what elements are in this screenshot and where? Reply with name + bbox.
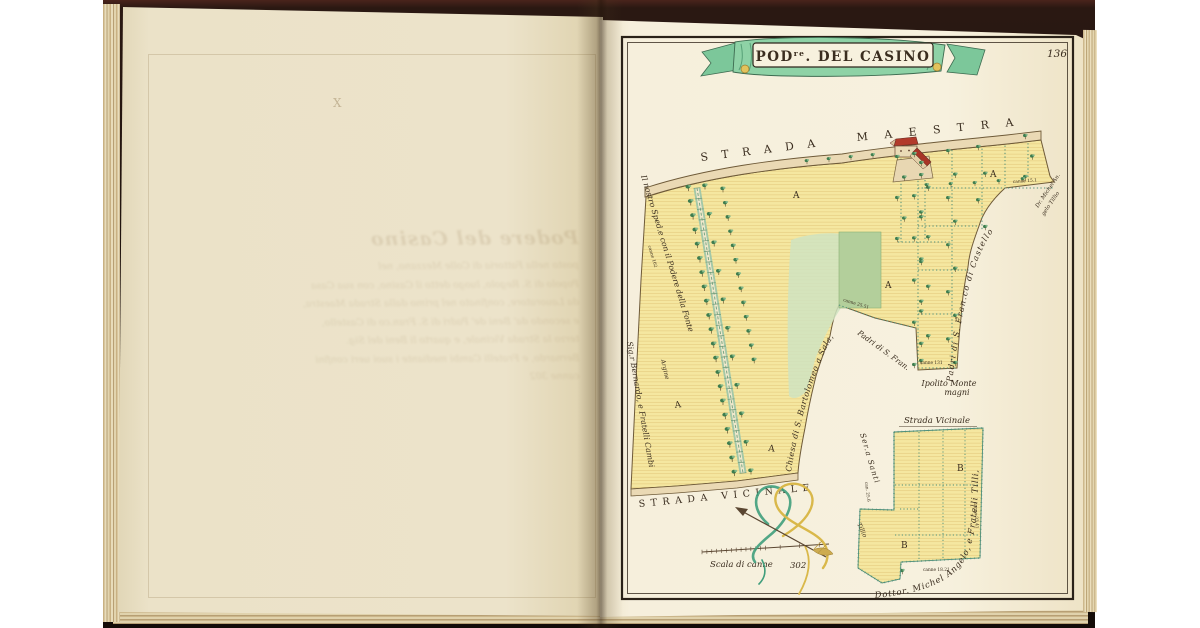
ghost-line: canne 302	[243, 368, 579, 389]
ghost-heading: Podere del Casino	[242, 227, 578, 251]
parcel-letter-b: B	[957, 464, 964, 474]
ghost-line: Popolo di S. Regolo, luogo detto il Casi…	[243, 275, 579, 296]
title-banner: PODre. DEL CASINO	[701, 37, 985, 76]
show-through-text: Podere del Casino posto nella Fattoria d…	[242, 227, 579, 389]
parcel-letter-a: A	[989, 170, 997, 180]
ghost-line: posto nella Fattoria di Colle Mezzano, n…	[243, 257, 579, 278]
ghost-line: da Lauoratore, confinato nel primo dalla…	[243, 294, 579, 315]
ghost-line: e secondo da' Beni de' Padri di S. Fran.…	[243, 312, 579, 333]
green-wood-parcel	[839, 232, 881, 308]
label-padri-fran: Padri di S. Fran.	[855, 328, 911, 372]
page-stain	[1160, 120, 1200, 150]
parcel-letter-b: B	[901, 541, 908, 551]
page-edges-right	[1083, 30, 1097, 612]
page-edges-left	[103, 4, 120, 622]
scale-value: 302	[790, 561, 806, 571]
ghost-line: terzo la Strada Vicinale, e quarto li Be…	[243, 331, 579, 352]
page-number: 136	[1047, 48, 1067, 60]
parcel-letter-a: A	[884, 281, 892, 291]
map-plate: 136 STRADA MAESTRA STRADA VICINALE	[617, 30, 1077, 605]
inset-road-label: Strada Vicinale	[904, 416, 970, 426]
book-cover: X Podere del Casino posto nella Fattoria…	[103, 0, 1095, 628]
ghost-mark: X	[333, 96, 342, 110]
scale-bar: Scala di canne 302	[702, 542, 829, 571]
measurement-label: canne 18.21	[923, 568, 950, 573]
label-ipolito-line2: magni	[944, 388, 970, 397]
left-page: X Podere del Casino posto nella Fattoria…	[115, 0, 603, 628]
knot-flourish-icon	[753, 484, 828, 594]
book-photo: { "page": { "number": "136" }, "banner":…	[0, 0, 1200, 628]
banner-title: PODre. DEL CASINO	[756, 49, 931, 65]
label-santi: Ser.a Santi	[858, 432, 882, 485]
parcel-letter-a: A	[767, 444, 776, 455]
ghost-line: Bernardo, e Fratelli Cambi mediante i su…	[243, 349, 579, 370]
parcel-letter-a: A	[792, 191, 800, 201]
measurement-label: canne 131	[920, 361, 943, 366]
measurement-label: can. 25.6	[863, 482, 870, 503]
